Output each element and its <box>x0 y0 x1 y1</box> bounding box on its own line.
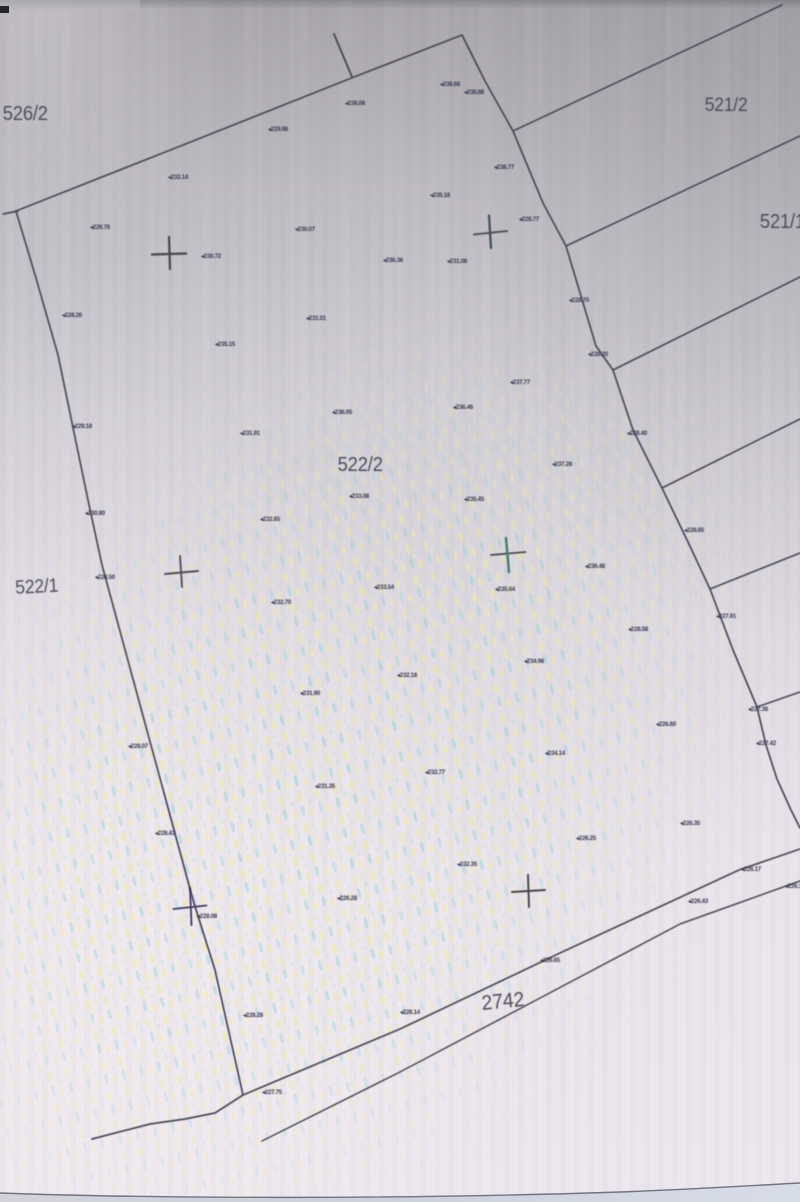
svg-text:◂232.77: ◂232.77 <box>424 769 446 776</box>
svg-text:◂230.72: ◂230.72 <box>200 253 222 260</box>
svg-text:◂226.76: ◂226.76 <box>89 224 111 231</box>
svg-text:◂232.70: ◂232.70 <box>270 599 292 606</box>
svg-text:◂229.18: ◂229.18 <box>71 423 93 430</box>
svg-text:◂226.1: ◂226.1 <box>784 883 800 890</box>
svg-text:◂233.08: ◂233.08 <box>348 493 370 500</box>
svg-text:◂226.17: ◂226.17 <box>740 866 762 873</box>
svg-text:◂231.08: ◂231.08 <box>446 258 468 265</box>
svg-text:◂235.45: ◂235.45 <box>463 496 485 503</box>
svg-text:◂236.36: ◂236.36 <box>382 257 404 264</box>
svg-text:◂226.14: ◂226.14 <box>399 1009 421 1016</box>
svg-text:◂238.88: ◂238.88 <box>463 89 485 96</box>
svg-text:◂232.18: ◂232.18 <box>396 672 418 679</box>
svg-text:◂235.15: ◂235.15 <box>214 341 236 348</box>
svg-text:◂227.38: ◂227.38 <box>747 706 769 713</box>
svg-text:◂227.91: ◂227.91 <box>715 613 737 620</box>
svg-text:◂228.07: ◂228.07 <box>127 743 149 750</box>
svg-text:◂228.50: ◂228.50 <box>94 574 116 581</box>
svg-text:◂228.40: ◂228.40 <box>626 430 648 437</box>
svg-text:◂236.46: ◂236.46 <box>452 404 474 411</box>
svg-text:◂226.25: ◂226.25 <box>575 835 597 842</box>
svg-text:2742: 2742 <box>481 988 526 1015</box>
svg-text:◂236.05: ◂236.05 <box>331 409 353 416</box>
svg-text:522/1: 522/1 <box>15 574 59 598</box>
svg-text:◂226.60: ◂226.60 <box>655 721 677 728</box>
svg-text:◂226.43: ◂226.43 <box>687 898 709 905</box>
svg-text:◂231.90: ◂231.90 <box>299 690 321 697</box>
svg-text:◂231.35: ◂231.35 <box>314 783 336 790</box>
svg-text:◂228.43: ◂228.43 <box>154 830 176 837</box>
svg-text:521/1: 521/1 <box>760 211 800 233</box>
svg-text:◂233.54: ◂233.54 <box>373 584 395 591</box>
svg-text:◂228.26: ◂228.26 <box>61 312 83 319</box>
svg-text:◂228.70: ◂228.70 <box>568 297 590 304</box>
svg-text:◂235.18: ◂235.18 <box>429 192 451 199</box>
svg-text:◂227.75: ◂227.75 <box>261 1089 283 1096</box>
svg-text:◂226.65: ◂226.65 <box>539 957 561 964</box>
svg-text:◂231.01: ◂231.01 <box>305 315 327 322</box>
svg-text:◂228.08: ◂228.08 <box>196 913 218 920</box>
svg-text:◂237.28: ◂237.28 <box>551 461 573 468</box>
svg-text:◂230.07: ◂230.07 <box>294 226 316 233</box>
svg-text:◂226.28: ◂226.28 <box>336 895 358 902</box>
svg-text:◂234.98: ◂234.98 <box>523 658 545 665</box>
svg-text:◂236.48: ◂236.48 <box>584 563 606 570</box>
svg-text:◂228.58: ◂228.58 <box>627 626 649 633</box>
svg-text:◂238.77: ◂238.77 <box>493 164 515 171</box>
svg-text:◂231.91: ◂231.91 <box>239 430 261 437</box>
svg-text:◂228.20: ◂228.20 <box>587 351 609 358</box>
svg-text:◂228.65: ◂228.65 <box>683 527 705 534</box>
svg-text:◂235.64: ◂235.64 <box>494 586 516 593</box>
svg-text:526/2: 526/2 <box>3 103 48 125</box>
svg-text:◂238.68: ◂238.68 <box>439 81 461 88</box>
svg-text:◂236.08: ◂236.08 <box>344 100 366 107</box>
svg-text:522/2: 522/2 <box>338 454 383 476</box>
svg-text:◂226.35: ◂226.35 <box>679 820 701 827</box>
svg-text:◂237.77: ◂237.77 <box>509 379 531 386</box>
svg-text:◂227.42: ◂227.42 <box>755 740 777 747</box>
svg-text:◂228.77: ◂228.77 <box>518 216 540 223</box>
svg-text:◂233.14: ◂233.14 <box>167 174 189 181</box>
svg-text:◂232.35: ◂232.35 <box>456 861 478 868</box>
svg-text:◂230.80: ◂230.80 <box>84 510 106 517</box>
svg-text:◂232.65: ◂232.65 <box>259 516 281 523</box>
svg-text:◂234.14: ◂234.14 <box>544 750 566 757</box>
svg-text:521/2: 521/2 <box>705 93 748 115</box>
svg-text:◂229.98: ◂229.98 <box>267 126 289 133</box>
svg-text:◂228.28: ◂228.28 <box>242 1012 264 1019</box>
